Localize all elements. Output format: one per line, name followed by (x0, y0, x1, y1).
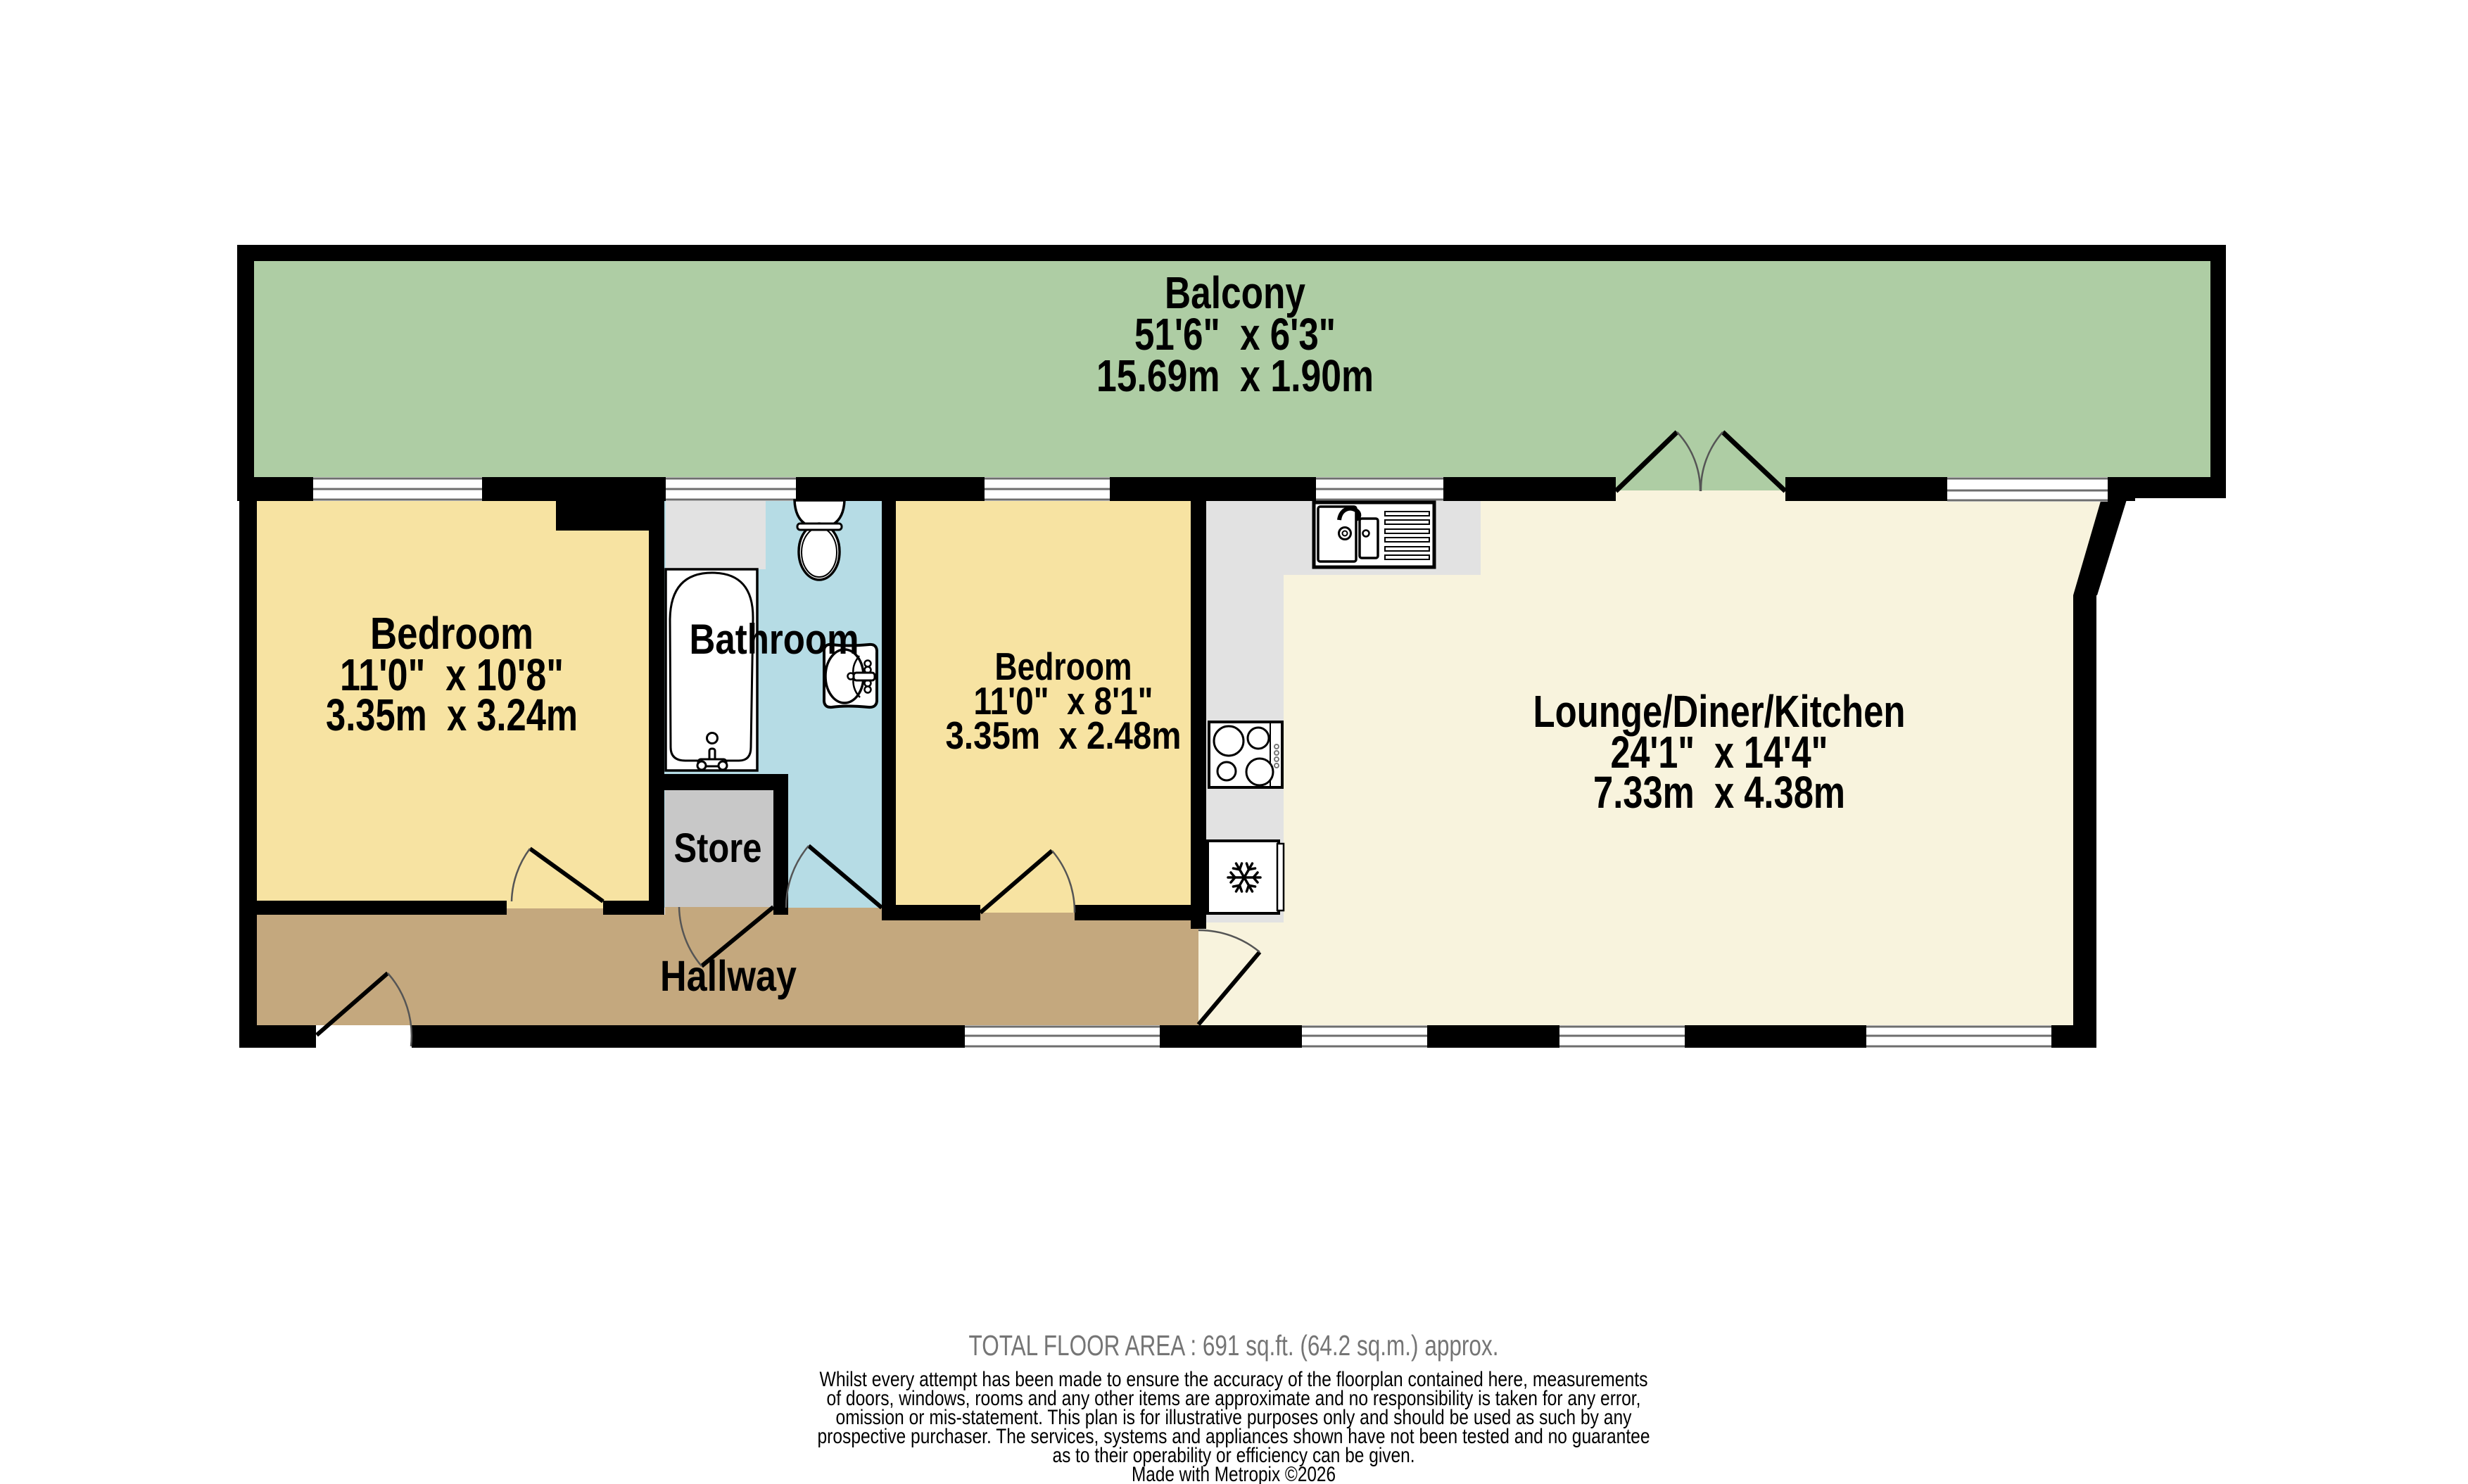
svg-text:3.35m x 3.24m: 3.35m x 3.24m (326, 690, 578, 740)
svg-text:Bathroom: Bathroom (690, 616, 859, 663)
svg-text:TOTAL FLOOR AREA : 691 sq.ft.: TOTAL FLOOR AREA : 691 sq.ft. (64.2 sq.m… (969, 1329, 1499, 1362)
svg-text:Made with Metropix ©2026: Made with Metropix ©2026 (1132, 1463, 1336, 1484)
svg-text:Hallway: Hallway (660, 952, 797, 1000)
svg-text:3.35m x 2.48m: 3.35m x 2.48m (946, 714, 1182, 757)
svg-text:15.69m x 1.90m: 15.69m x 1.90m (1096, 350, 1374, 401)
svg-text:Store: Store (674, 825, 762, 871)
svg-text:7.33m x 4.38m: 7.33m x 4.38m (1593, 767, 1845, 818)
